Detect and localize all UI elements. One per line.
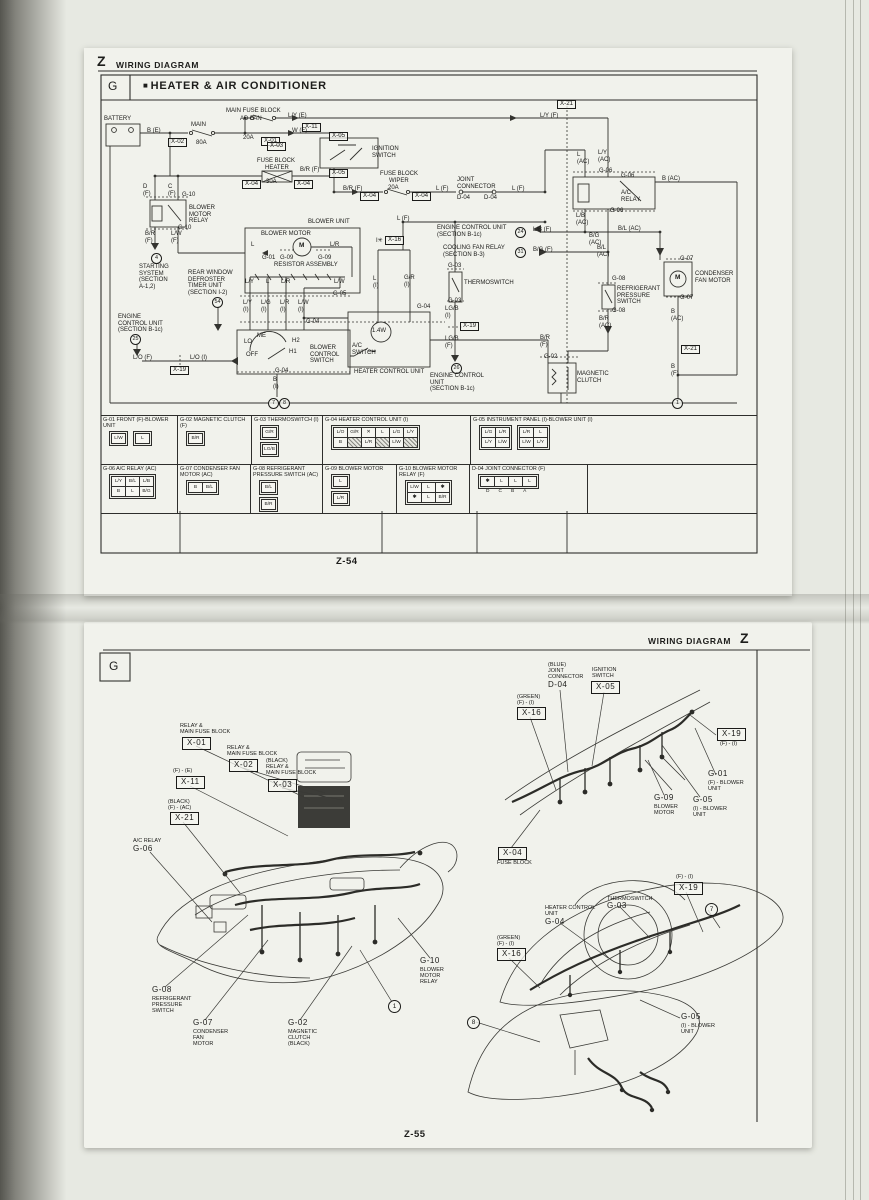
connector-pin: B (333, 437, 348, 448)
connector-shell: ✱LLL (478, 474, 539, 489)
page-edge-letter: Z (97, 53, 106, 69)
connector-cell-g-05: G-05 INSTRUMENT PANEL (I)-BLOWER UNIT (I… (471, 416, 757, 464)
connector-shell: L/R (331, 491, 350, 506)
page-gap-shadow (0, 594, 869, 624)
connector-pin: L/W (389, 437, 404, 448)
connector-cell-header: G-02 MAGNETIC CLUTCH (F) (180, 417, 249, 429)
connector-pin-table: G-01 FRONT (F)-BLOWER UNITL/WLG-02 MAGNE… (101, 415, 757, 514)
connector-pin: B/L (202, 482, 217, 493)
connector-table-row: G-06 A/C RELAY (AC)L/YB/LL/BBLB/GG-07 CO… (101, 464, 757, 513)
connector-pin: L/R (361, 437, 376, 448)
connector-cell-header: G-03 THERMOSWITCH (I) (254, 417, 320, 423)
connector-shell: B/R (186, 431, 205, 446)
page-edge-title: WIRING DIAGRAM (648, 636, 731, 646)
connector-cell-header: G-08 REFRIGERANT PRESSURE SWITCH (AC) (253, 466, 320, 478)
connector-pin (403, 437, 418, 448)
connector-cell-g-10: G-10 BLOWER MOTOR RELAY (F)L/WL✱✱LB/R (397, 465, 470, 513)
connector-pin: B/R (435, 492, 450, 503)
connector-cell-g-01: G-01 FRONT (F)-BLOWER UNITL/WL (101, 416, 178, 464)
connector-pin: B/G (139, 486, 154, 497)
connector-pin: L/Y (533, 437, 548, 448)
connector-cell-g-06: G-06 A/C RELAY (AC)L/YB/LL/BBLB/G (101, 465, 178, 513)
connector-pin: L/W (111, 433, 126, 444)
connector-pin: L (508, 476, 523, 487)
connector-cell-header: G-10 BLOWER MOTOR RELAY (F) (399, 466, 467, 478)
diagram-title-text: HEATER & AIR CONDITIONER (151, 80, 327, 92)
connector-shell: L/OG/R✕LL/GL/YBL/RL/W (331, 425, 420, 450)
connector-pin: L (421, 492, 436, 503)
connector-cell-header: G-04 HEATER CONTROL UNIT (I) (325, 417, 468, 423)
connector-cell-header: G-01 FRONT (F)-BLOWER UNIT (103, 417, 175, 429)
connector-pin: ✱ (407, 492, 422, 503)
connector-pin: L/W (495, 437, 510, 448)
connector-cell-g-09: G-09 BLOWER MOTORLL/R (323, 465, 397, 513)
connector-pin (347, 437, 362, 448)
connector-shell: L/RLL/WL/Y (517, 425, 550, 450)
connector-cell-header: G-07 CONDENSER FAN MOTOR (AC) (180, 466, 248, 478)
connector-shell: L/WL✱✱LB/R (405, 480, 452, 505)
connector-pin: L/W (519, 437, 534, 448)
scanned-book-page: Z WIRING DIAGRAM G ■HEATER & AIR CONDITI… (0, 0, 869, 1200)
connector-cell-d-04: D-04 JOINT CONNECTOR (F)✱LLLDCBA (470, 465, 588, 513)
connector-pin: B (111, 486, 126, 497)
page-edge-title: WIRING DIAGRAM (116, 60, 199, 70)
connector-pin: L (494, 476, 509, 487)
connector-shell: B/R (259, 497, 278, 512)
connector-cell-empty (588, 465, 757, 513)
connector-shell: L/YB/LL/BBLB/G (109, 474, 156, 499)
section-letter: G (108, 79, 117, 93)
connector-cell-g-04: G-04 HEATER CONTROL UNIT (I)L/OG/R✕LL/GL… (323, 416, 471, 464)
connector-cell-header: G-05 INSTRUMENT PANEL (I)-BLOWER UNIT (I… (473, 417, 755, 423)
connector-pin (375, 437, 390, 448)
connector-pin: LG/B (262, 444, 277, 455)
connector-pin: L (135, 433, 150, 444)
page-number: Z-54 (336, 556, 358, 567)
connector-cell-g-02: G-02 MAGNETIC CLUTCH (F)B/R (178, 416, 252, 464)
connector-pin: B/L (261, 482, 276, 493)
diagram-title: ■HEATER & AIR CONDITIONER (143, 80, 327, 92)
connector-shell: L/GL/RL/YL/W (479, 425, 512, 450)
connector-cell-g-03: G-03 THERMOSWITCH (I)G/RLG/B (252, 416, 323, 464)
connector-cell-header: G-09 BLOWER MOTOR (325, 466, 394, 472)
connector-cell-header: D-04 JOINT CONNECTOR (F) (472, 466, 585, 472)
section-letter: G (109, 659, 118, 673)
title-bullet-icon: ■ (143, 81, 149, 90)
connector-pin: B/R (261, 499, 276, 510)
connector-pin: L/R (333, 493, 348, 504)
connector-pin: ✱ (480, 476, 495, 487)
connector-pin: L (522, 476, 537, 487)
page-z55 (84, 622, 812, 1148)
connector-shell: L/W (109, 431, 128, 446)
page-number: Z-55 (404, 1129, 426, 1140)
connector-pin-letters: DCBA (486, 489, 585, 494)
connector-cell-header: G-06 A/C RELAY (AC) (103, 466, 175, 472)
connector-pin: L (125, 486, 140, 497)
connector-shell: G/R (260, 425, 279, 440)
connector-pin: B/R (188, 433, 203, 444)
connector-pin: B (188, 482, 203, 493)
page-edge-letter: Z (740, 630, 749, 646)
connector-shell: L (331, 474, 350, 489)
connector-shell: BB/L (186, 480, 219, 495)
connector-pin: L/Y (481, 437, 496, 448)
connector-shell: L (133, 431, 152, 446)
connector-shell: B/L (259, 480, 278, 495)
connector-pin: L (333, 476, 348, 487)
connector-shell: LG/B (260, 442, 279, 457)
connector-cell-g-08: G-08 REFRIGERANT PRESSURE SWITCH (AC)B/L… (251, 465, 323, 513)
connector-pin: G/R (262, 427, 277, 438)
connector-table-row: G-01 FRONT (F)-BLOWER UNITL/WLG-02 MAGNE… (101, 416, 757, 464)
connector-cell-g-07: G-07 CONDENSER FAN MOTOR (AC)BB/L (178, 465, 251, 513)
